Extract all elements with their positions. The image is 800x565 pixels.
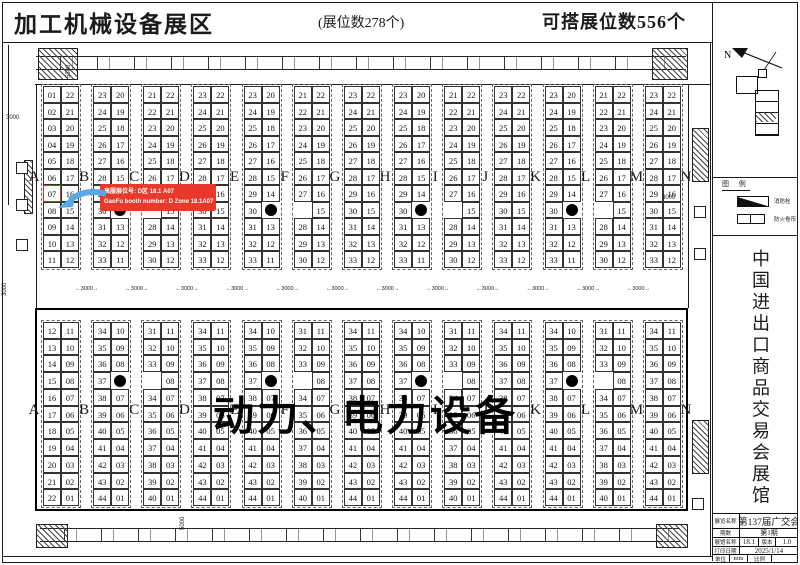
booth-cell: 10: [312, 339, 330, 356]
booth-cell: 11: [262, 251, 280, 268]
booth-cell: 25: [394, 119, 412, 136]
booth-cell: 20: [61, 119, 79, 136]
booth-cell: 39: [645, 406, 663, 423]
booth-cell: 03: [211, 456, 229, 473]
booth-strip-g-top: 2324252627282930313233222120191817161514…: [344, 86, 380, 268]
booth-cell: 44: [494, 489, 512, 506]
booth-cell: 29: [294, 235, 312, 252]
titleblock-r2-label: 期数: [712, 529, 740, 537]
booth-cell: 31: [595, 322, 613, 339]
booth-cell: 05: [111, 422, 129, 439]
dim-left-bottom: 3000: [2, 283, 8, 296]
booth-cell: 14: [61, 218, 79, 235]
booth-cell: 04: [563, 439, 581, 456]
booth-cell: 34: [595, 389, 613, 406]
booth-cell: 19: [161, 136, 179, 153]
legend-title: 图 例: [722, 179, 750, 191]
booth-cell: 24: [545, 103, 563, 120]
booth-cell: 17: [412, 136, 430, 153]
dim-aisle-width: ←3000→: [376, 286, 398, 292]
booth-cell: 12: [312, 251, 330, 268]
booth-cell: 09: [512, 355, 530, 372]
callout-line1: 高服展位号: D区 18.1 A07: [104, 187, 212, 197]
booth-cell: 15: [262, 169, 280, 186]
booth-cell: 18: [412, 119, 430, 136]
booth-cell: 20: [161, 119, 179, 136]
booth-cell: 14: [312, 218, 330, 235]
booth-cell: 24: [93, 103, 111, 120]
booth-cell: 23: [494, 86, 512, 103]
booth-cell: 15: [663, 202, 681, 219]
booth-cell: 24: [244, 103, 262, 120]
booth-cell: 05: [663, 422, 681, 439]
booth-cell: 24: [294, 136, 312, 153]
booth-cell: 02: [362, 473, 380, 490]
booth-cell: 06: [563, 406, 581, 423]
booth-cell: 27: [244, 152, 262, 169]
booth-cell: 40: [545, 422, 563, 439]
booth-cell: 32: [645, 235, 663, 252]
booth-cell: 16: [412, 152, 430, 169]
booth-cell: 33: [294, 355, 312, 372]
booth-cell: 12: [512, 251, 530, 268]
booth-cell: 25: [595, 152, 613, 169]
booth-cell: 22: [61, 86, 79, 103]
booth-cell: 27: [344, 152, 362, 169]
booth-cell: 02: [312, 473, 330, 490]
booth-cell: 07: [613, 389, 631, 406]
booth-cell: 10: [61, 339, 79, 356]
dim-aisle-width: ←3000→: [476, 286, 498, 292]
booth-cell: 14: [161, 218, 179, 235]
booth-cell: 20: [211, 119, 229, 136]
booth-cell: 22: [444, 103, 462, 120]
booth-cell: 22: [161, 86, 179, 103]
booth-cell: 03: [512, 456, 530, 473]
booth-cell: 35: [595, 406, 613, 423]
aisle-letter-l: L: [580, 402, 592, 419]
booth-cell: 10: [111, 322, 129, 339]
booth-strip-j-top: 2324252627282930313233222120191817161514…: [494, 86, 530, 268]
booth-cell: 19: [362, 136, 380, 153]
booth-cell: 38: [595, 456, 613, 473]
booth-cell: 01: [161, 489, 179, 506]
booth-cell: 31: [193, 218, 211, 235]
booth-cell: 35: [645, 339, 663, 356]
booth-cell: 23: [444, 119, 462, 136]
booth-cell: 33: [143, 355, 161, 372]
aisle-letter-l: L: [580, 169, 592, 186]
booth-cell: 13: [43, 339, 61, 356]
booth-cell: 33: [193, 251, 211, 268]
booth-cell: 33: [595, 355, 613, 372]
titleblock-version-label: 版本: [759, 538, 776, 546]
booth-cell: 32: [444, 339, 462, 356]
booth-cell: 34: [545, 322, 563, 339]
keyplan-current-hall: [756, 112, 776, 122]
booth-cell: 36: [645, 355, 663, 372]
booth-strip-c-top: 2122232425262728293022212019181716151413…: [143, 86, 179, 268]
booth-cell: 02: [61, 473, 79, 490]
booth-cell: 26: [394, 136, 412, 153]
booth-cell: 30: [444, 251, 462, 268]
booth-count-label: (展位数278个): [318, 12, 404, 32]
booth-cell: 29: [444, 235, 462, 252]
right-inner-wall-line: [688, 84, 689, 308]
booth-cell: 25: [444, 152, 462, 169]
booth-cell: 26: [143, 169, 161, 186]
dim-aisle-width: ←3000→: [577, 286, 599, 292]
booth-cell: 21: [312, 103, 330, 120]
titleblock-scale-label: 比例: [748, 555, 772, 562]
booth-cell: 30: [645, 202, 663, 219]
booth-cell: 02: [663, 473, 681, 490]
dim-aisle-width: ←3000→: [75, 286, 97, 292]
booth-cell: 26: [494, 136, 512, 153]
booth-cell: 10: [663, 339, 681, 356]
booth-cell: 39: [143, 473, 161, 490]
booth-cell: 33: [394, 251, 412, 268]
booth-cell: 13: [613, 235, 631, 252]
dim-aisle-width: ←3000→: [226, 286, 248, 292]
booth-cell: 01: [262, 489, 280, 506]
aisle-letter-a: A: [28, 402, 40, 419]
booth-cell: 25: [93, 119, 111, 136]
booth-cell: 25: [344, 119, 362, 136]
booth-cell: 19: [512, 136, 530, 153]
booth-cell: 43: [93, 473, 111, 490]
booth-cell: 12: [362, 251, 380, 268]
booth-cell: 16: [512, 185, 530, 202]
booth-cell: 32: [93, 235, 111, 252]
booth-cell: 27: [645, 152, 663, 169]
booth-cell: 28: [595, 218, 613, 235]
booth-cell: 43: [645, 473, 663, 490]
booth-cell: 28: [244, 169, 262, 186]
booth-cell: 27: [193, 152, 211, 169]
booth-cell: 37: [595, 439, 613, 456]
booth-cell: 38: [143, 456, 161, 473]
booth-cell: 42: [494, 456, 512, 473]
booth-cell: 11: [362, 322, 380, 339]
booth-cell: 36: [193, 355, 211, 372]
booth-cell: 42: [193, 456, 211, 473]
booth-cell: 28: [93, 169, 111, 186]
booth-cell: 16: [462, 185, 480, 202]
booth-cell: 15: [512, 202, 530, 219]
booth-cell: 09: [61, 355, 79, 372]
booth-cell: 13: [312, 235, 330, 252]
booth-cell: 39: [294, 473, 312, 490]
booth-cell: 23: [93, 86, 111, 103]
booth-cell: 18: [663, 152, 681, 169]
booth-cell: [595, 372, 613, 389]
booth-cell: 02: [563, 473, 581, 490]
booth-cell: 21: [43, 473, 61, 490]
title-block: 展览名称 第137届广交会 期数 第1期 展馆名称 18.1 版本 1.0 打印…: [712, 513, 798, 561]
bottom-wall-line: [2, 556, 712, 557]
booth-cell: 28: [494, 169, 512, 186]
booth-cell: 21: [462, 103, 480, 120]
booth-cell: 32: [595, 339, 613, 356]
booth-callout: 高服展位号: D区 18.1 A07 GaoFu booth number: D…: [100, 184, 216, 211]
exhibition-name: 第137届广交会: [740, 514, 798, 528]
booth-cell: 10: [462, 339, 480, 356]
booth-cell: 01: [43, 86, 61, 103]
booth-cell: 05: [613, 422, 631, 439]
booth-cell: 28: [193, 169, 211, 186]
booth-cell: 34: [143, 389, 161, 406]
booth-cell: 35: [143, 406, 161, 423]
booth-cell: 34: [344, 322, 362, 339]
booth-cell: 39: [595, 473, 613, 490]
booth-cell: 06: [613, 406, 631, 423]
booth-cell: 21: [663, 103, 681, 120]
booth-cell: 40: [444, 489, 462, 506]
booth-cell: 32: [545, 235, 563, 252]
dim-aisle-width: ←3000→: [326, 286, 348, 292]
booth-cell: 32: [344, 235, 362, 252]
booth-cell: 09: [362, 355, 380, 372]
booth-cell: 16: [563, 152, 581, 169]
booth-cell: 29: [545, 185, 563, 202]
booth-cell: 35: [344, 339, 362, 356]
aisle-letter-n: N: [680, 169, 692, 186]
aisle-letter-k: K: [530, 169, 542, 186]
booth-cell: 05: [563, 422, 581, 439]
column-marker: [694, 248, 706, 260]
booth-cell: 28: [444, 218, 462, 235]
booth-cell: 14: [563, 185, 581, 202]
booth-cell: 31: [294, 322, 312, 339]
booth-cell: 32: [244, 235, 262, 252]
booth-cell: 44: [645, 489, 663, 506]
booth-cell: 25: [645, 119, 663, 136]
booth-cell: 25: [143, 152, 161, 169]
booth-cell: 08: [61, 372, 79, 389]
booth-cell: 33: [444, 355, 462, 372]
booth-cell: 23: [645, 86, 663, 103]
booth-cell: 12: [61, 251, 79, 268]
booth-cell: 12: [462, 251, 480, 268]
booth-cell: 05: [43, 152, 61, 169]
booth-cell: 22: [43, 489, 61, 506]
aisle-letter-a: A: [28, 169, 40, 186]
booth-cell: 20: [613, 119, 631, 136]
booth-cell: 36: [143, 422, 161, 439]
booth-cell: 13: [111, 218, 129, 235]
booth-cell: 23: [344, 86, 362, 103]
booth-cell: 11: [663, 322, 681, 339]
booth-cell: 31: [344, 218, 362, 235]
booth-cell: 15: [312, 202, 330, 219]
booth-cell: 40: [193, 422, 211, 439]
booth-cell: 04: [43, 136, 61, 153]
booth-cell: 35: [494, 339, 512, 356]
zone-overlay-label-2: 电力设备: [342, 382, 518, 442]
booth-strip-b-bottom: 3435363738394041424344100908070605040302…: [93, 322, 129, 506]
booth-cell: 13: [563, 218, 581, 235]
booth-cell: 19: [262, 103, 280, 120]
booth-cell: 17: [362, 169, 380, 186]
pillar-dot: [114, 375, 126, 387]
booth-cell: 38: [193, 389, 211, 406]
booth-strip-i-top: 2122232425262728293022212019181716151413…: [444, 86, 480, 268]
booth-cell: 40: [595, 489, 613, 506]
booth-cell: 39: [93, 406, 111, 423]
booth-cell: 32: [143, 339, 161, 356]
booth-cell: 28: [545, 169, 563, 186]
booth-cell: 23: [545, 86, 563, 103]
booth-cell: 29: [244, 185, 262, 202]
booth-cell: 22: [211, 86, 229, 103]
booth-cell: 41: [645, 439, 663, 456]
booth-cell: 42: [244, 456, 262, 473]
booth-cell: [294, 202, 312, 219]
aisle-letter-m: M: [630, 169, 642, 186]
booth-cell: 04: [613, 439, 631, 456]
booth-cell: 03: [412, 456, 430, 473]
booth-cell: 23: [294, 119, 312, 136]
booth-cell: 44: [244, 489, 262, 506]
aisle-letter-k: K: [530, 402, 542, 419]
booth-cell: 29: [344, 185, 362, 202]
booth-cell: 11: [613, 322, 631, 339]
dim-aisle-width: ←3000→: [627, 286, 649, 292]
booth-cell: 21: [161, 103, 179, 120]
booth-cell: 25: [545, 119, 563, 136]
booth-cell: 18: [512, 152, 530, 169]
booth-cell: 12: [613, 251, 631, 268]
booth-cell: 26: [244, 136, 262, 153]
booth-cell: [262, 202, 280, 219]
booth-cell: 10: [362, 339, 380, 356]
svg-text:N: N: [724, 50, 731, 61]
booth-cell: 17: [613, 169, 631, 186]
titleblock-r5-label: 单位: [712, 555, 730, 562]
booth-cell: 17: [161, 169, 179, 186]
aisle-letter-b: B: [78, 169, 90, 186]
booth-cell: 25: [193, 119, 211, 136]
booth-cell: 06: [43, 169, 61, 186]
legend-item2-label: 防火卷帘: [774, 215, 796, 223]
booth-cell: 35: [244, 339, 262, 356]
booth-cell: 40: [645, 422, 663, 439]
booth-cell: 37: [545, 372, 563, 389]
booth-cell: 19: [462, 136, 480, 153]
booth-cell: 29: [494, 185, 512, 202]
booth-cell: 34: [394, 322, 412, 339]
top-wall-line: [2, 42, 712, 43]
booth-cell: 12: [663, 251, 681, 268]
booth-cell: 15: [613, 202, 631, 219]
scale-value: [772, 555, 798, 562]
column-marker: [16, 199, 28, 211]
booth-cell: 10: [43, 235, 61, 252]
booth-cell: 13: [512, 235, 530, 252]
booth-cell: 19: [61, 136, 79, 153]
hall-number: 18.1: [740, 538, 759, 546]
booth-cell: 21: [61, 103, 79, 120]
booth-cell: 34: [645, 322, 663, 339]
booth-cell: 42: [645, 456, 663, 473]
top-inner-wall-line: [35, 84, 710, 85]
booth-cell: 22: [512, 86, 530, 103]
booth-cell: 33: [244, 251, 262, 268]
booth-cell: 10: [563, 322, 581, 339]
booth-cell: 11: [462, 322, 480, 339]
floorplan-page: { "header": { "title": "加工机械设备展区", "boot…: [0, 0, 800, 565]
booth-cell: 36: [595, 422, 613, 439]
titleblock-r4-label: 打印日期: [712, 547, 740, 554]
booth-strip-l-bottom: 3132333435363738394011100908070605040302…: [595, 322, 631, 506]
booth-cell: 35: [394, 339, 412, 356]
booth-cell: 20: [111, 86, 129, 103]
booth-cell: 31: [244, 218, 262, 235]
dim-left-top: 5300: [66, 65, 72, 78]
booth-cell: 09: [412, 339, 430, 356]
booth-cell: 07: [563, 389, 581, 406]
booth-cell: 43: [193, 473, 211, 490]
booth-cell: 21: [595, 86, 613, 103]
booth-cell: 07: [663, 389, 681, 406]
booth-cell: 18: [362, 152, 380, 169]
booth-cell: 36: [545, 355, 563, 372]
booth-cell: 17: [111, 136, 129, 153]
booth-cell: 24: [394, 103, 412, 120]
booth-cell: 27: [93, 152, 111, 169]
booth-cell: 26: [545, 136, 563, 153]
aisle-letter-d: D: [178, 402, 190, 419]
booth-cell: 01: [462, 489, 480, 506]
booth-cell: 30: [244, 202, 262, 219]
booth-cell: 17: [462, 169, 480, 186]
booth-cell: 08: [412, 355, 430, 372]
booth-cell: 17: [563, 136, 581, 153]
aisle-letter-j: J: [479, 169, 491, 186]
stair-block-bottomright: [656, 524, 688, 548]
phase-value: 第1期: [740, 529, 798, 537]
booth-cell: 42: [394, 456, 412, 473]
dim-bottom-center: 5000: [180, 517, 186, 530]
booth-cell: 41: [93, 439, 111, 456]
booth-cell: 27: [394, 152, 412, 169]
zone-title: 加工机械设备展区: [14, 5, 214, 39]
booth-cell: 02: [111, 473, 129, 490]
booth-cell: 24: [344, 103, 362, 120]
booth-cell: 31: [394, 218, 412, 235]
booth-cell: 43: [344, 473, 362, 490]
booth-cell: 08: [262, 355, 280, 372]
booth-cell: 25: [494, 119, 512, 136]
booth-cell: 15: [43, 372, 61, 389]
booth-cell: 14: [412, 185, 430, 202]
booth-cell: 22: [595, 103, 613, 120]
booth-cell: 03: [312, 456, 330, 473]
booth-cell: 36: [494, 355, 512, 372]
booth-cell: 24: [143, 136, 161, 153]
booth-cell: 38: [645, 389, 663, 406]
booth-cell: 17: [43, 406, 61, 423]
booth-cell: 03: [563, 456, 581, 473]
booth-cell: 21: [143, 86, 161, 103]
booth-cell: 27: [545, 152, 563, 169]
booth-cell: 23: [244, 86, 262, 103]
booth-cell: 24: [494, 103, 512, 120]
aisle-letter-b: B: [78, 402, 90, 419]
booth-cell: 15: [563, 169, 581, 186]
booth-cell: 38: [93, 389, 111, 406]
